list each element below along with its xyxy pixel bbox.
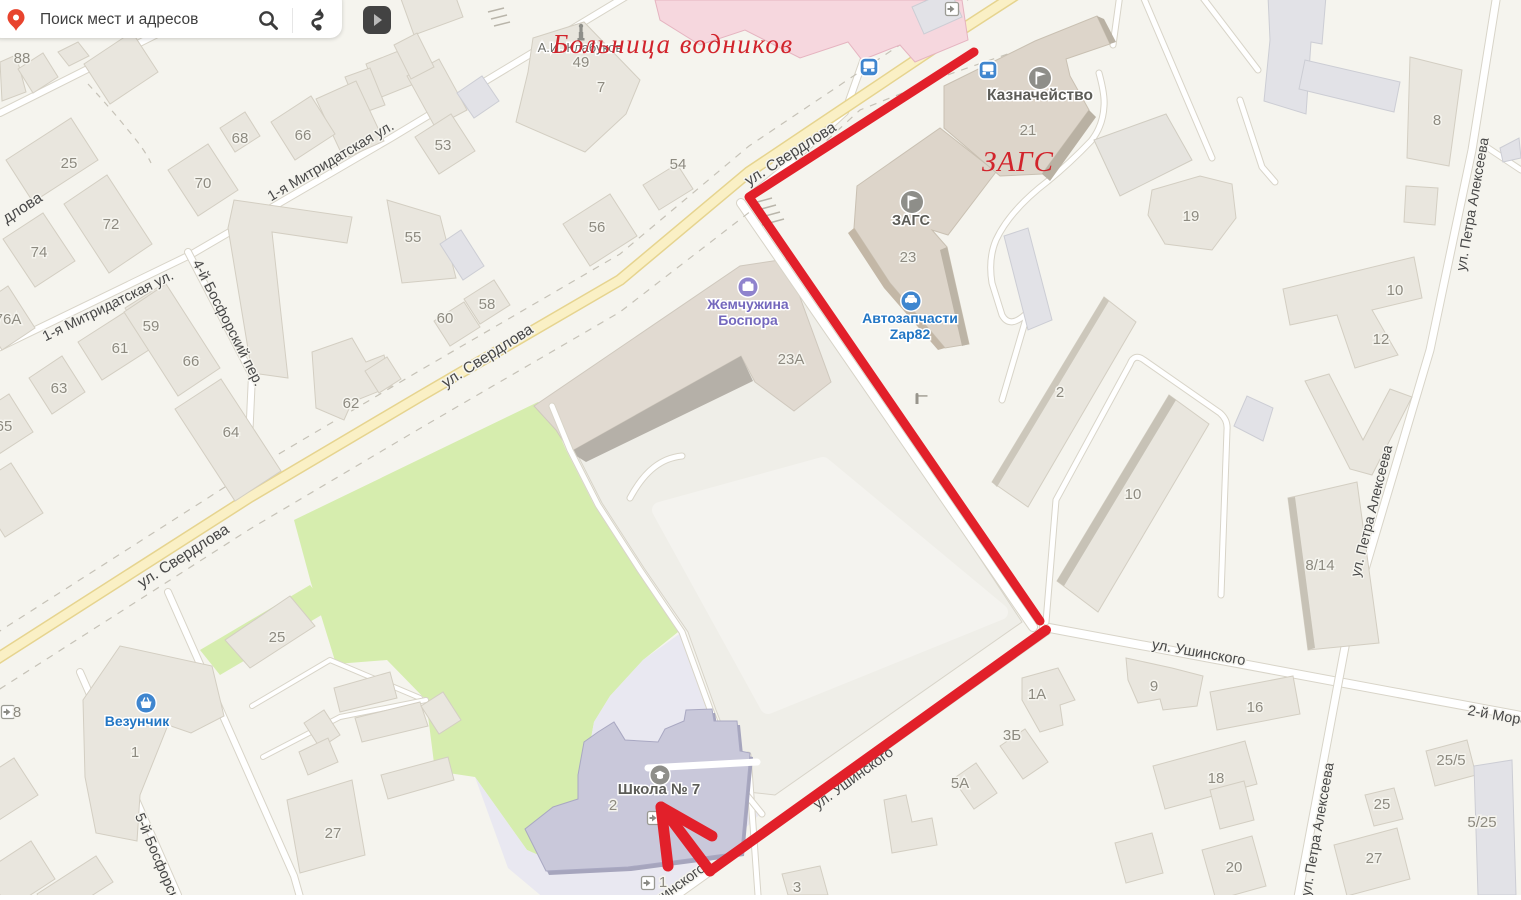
svg-text:9: 9: [1150, 678, 1158, 695]
svg-text:56: 56: [589, 219, 606, 236]
svg-text:58: 58: [479, 296, 496, 313]
svg-text:61: 61: [112, 340, 129, 357]
svg-text:18: 18: [1208, 770, 1225, 787]
svg-text:8: 8: [13, 704, 21, 721]
svg-text:Больница водников: Больница водников: [551, 29, 793, 59]
svg-text:27: 27: [325, 825, 342, 842]
svg-text:70: 70: [195, 175, 212, 192]
svg-text:10: 10: [1387, 282, 1404, 299]
svg-text:12: 12: [1373, 331, 1390, 348]
svg-text:64: 64: [223, 424, 240, 441]
svg-text:3Б: 3Б: [1003, 727, 1021, 744]
svg-text:54: 54: [670, 156, 687, 173]
svg-text:25: 25: [269, 629, 286, 646]
svg-text:Везунчик: Везунчик: [105, 713, 170, 729]
svg-text:8: 8: [1433, 112, 1441, 129]
svg-text:20: 20: [1226, 859, 1243, 876]
svg-text:3: 3: [793, 879, 801, 895]
svg-text:55: 55: [405, 229, 422, 246]
svg-text:65: 65: [0, 418, 12, 435]
svg-text:68: 68: [232, 130, 249, 147]
svg-text:ЗАГС: ЗАГС: [892, 213, 931, 229]
svg-text:25: 25: [61, 155, 78, 172]
svg-text:88: 88: [14, 50, 31, 67]
svg-text:27: 27: [1366, 850, 1383, 867]
svg-text:1: 1: [659, 874, 667, 891]
svg-text:76А: 76А: [0, 311, 21, 328]
svg-text:5/25: 5/25: [1467, 814, 1496, 831]
svg-text:53: 53: [435, 137, 452, 154]
svg-text:Жемчужина: Жемчужина: [706, 296, 789, 312]
svg-text:16: 16: [1247, 699, 1264, 716]
svg-text:Казначейство: Казначейство: [987, 87, 1093, 104]
svg-text:72: 72: [103, 216, 120, 233]
svg-text:ЗАГС: ЗАГС: [982, 146, 1054, 178]
svg-text:Автозапчасти: Автозапчасти: [862, 310, 958, 326]
svg-text:21: 21: [1020, 122, 1037, 139]
svg-text:Боспора: Боспора: [718, 312, 778, 328]
svg-text:8/14: 8/14: [1305, 557, 1334, 574]
svg-text:23А: 23А: [778, 351, 805, 368]
svg-text:25/5: 25/5: [1436, 752, 1465, 769]
svg-text:2: 2: [1056, 384, 1064, 401]
svg-text:66: 66: [183, 353, 200, 370]
svg-text:10: 10: [1125, 486, 1142, 503]
svg-text:23: 23: [900, 249, 917, 266]
svg-text:5А: 5А: [951, 775, 969, 792]
svg-text:63: 63: [51, 380, 68, 397]
svg-text:19: 19: [1183, 208, 1200, 225]
svg-text:25: 25: [1374, 796, 1391, 813]
svg-text:60: 60: [437, 310, 454, 327]
svg-text:1: 1: [131, 744, 139, 761]
svg-text:74: 74: [31, 244, 48, 261]
svg-text:62: 62: [343, 395, 360, 412]
svg-text:7: 7: [597, 79, 605, 96]
svg-text:2: 2: [609, 797, 617, 814]
svg-text:Zap82: Zap82: [890, 326, 931, 342]
svg-text:1А: 1А: [1028, 686, 1046, 703]
svg-text:66: 66: [295, 127, 312, 144]
svg-text:Школа № 7: Школа № 7: [618, 781, 700, 798]
svg-text:59: 59: [143, 318, 160, 335]
